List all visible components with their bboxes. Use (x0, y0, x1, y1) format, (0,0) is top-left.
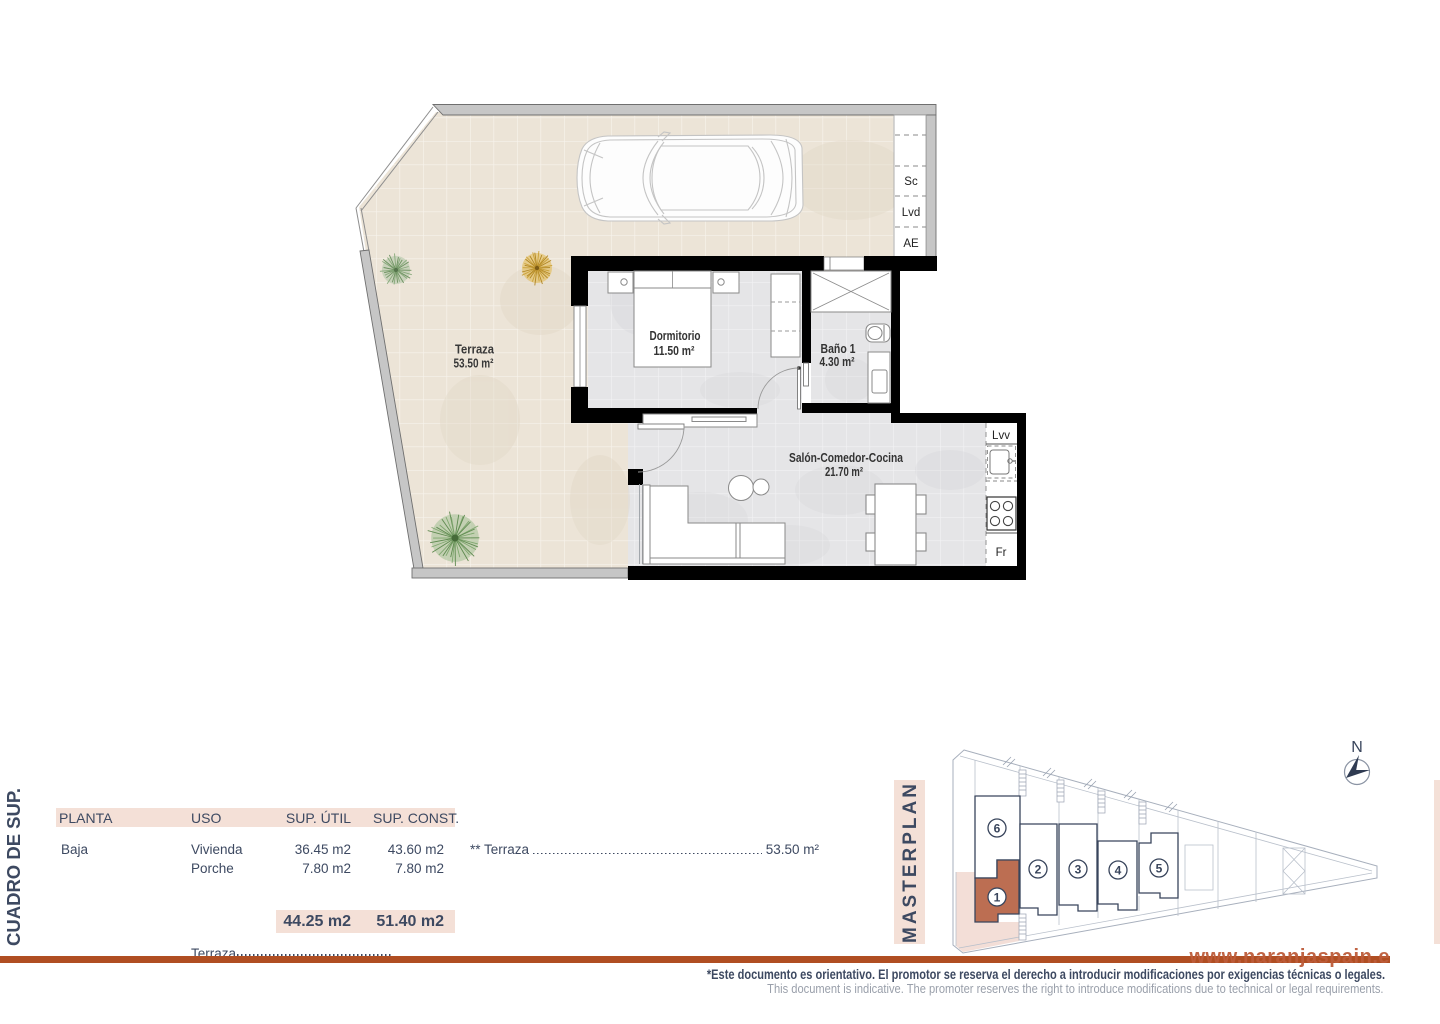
svg-text:53.50 m²: 53.50 m² (454, 356, 495, 371)
svg-text:5: 5 (1156, 862, 1163, 876)
svg-text:Sc: Sc (904, 176, 918, 188)
svg-text:11.50 m²: 11.50 m² (654, 343, 696, 358)
svg-text:Lvd: Lvd (902, 207, 921, 219)
svg-text:Salón-Comedor-Cocina: Salón-Comedor-Cocina (789, 450, 904, 465)
svg-text:6: 6 (994, 822, 1001, 836)
svg-text:Terraza: Terraza (455, 342, 495, 357)
svg-text:21.70 m²: 21.70 m² (825, 464, 863, 479)
svg-text:4.30 m²: 4.30 m² (820, 354, 856, 369)
svg-text:Fr: Fr (996, 547, 1007, 559)
svg-text:AE: AE (903, 238, 919, 250)
svg-text:Lvv: Lvv (992, 430, 1010, 442)
svg-text:N: N (1351, 739, 1363, 756)
svg-text:Dormitorio: Dormitorio (650, 328, 701, 343)
svg-text:3: 3 (1075, 863, 1082, 877)
svg-text:2: 2 (1035, 863, 1042, 877)
svg-text:1: 1 (994, 891, 1001, 905)
svg-text:4: 4 (1115, 864, 1122, 878)
